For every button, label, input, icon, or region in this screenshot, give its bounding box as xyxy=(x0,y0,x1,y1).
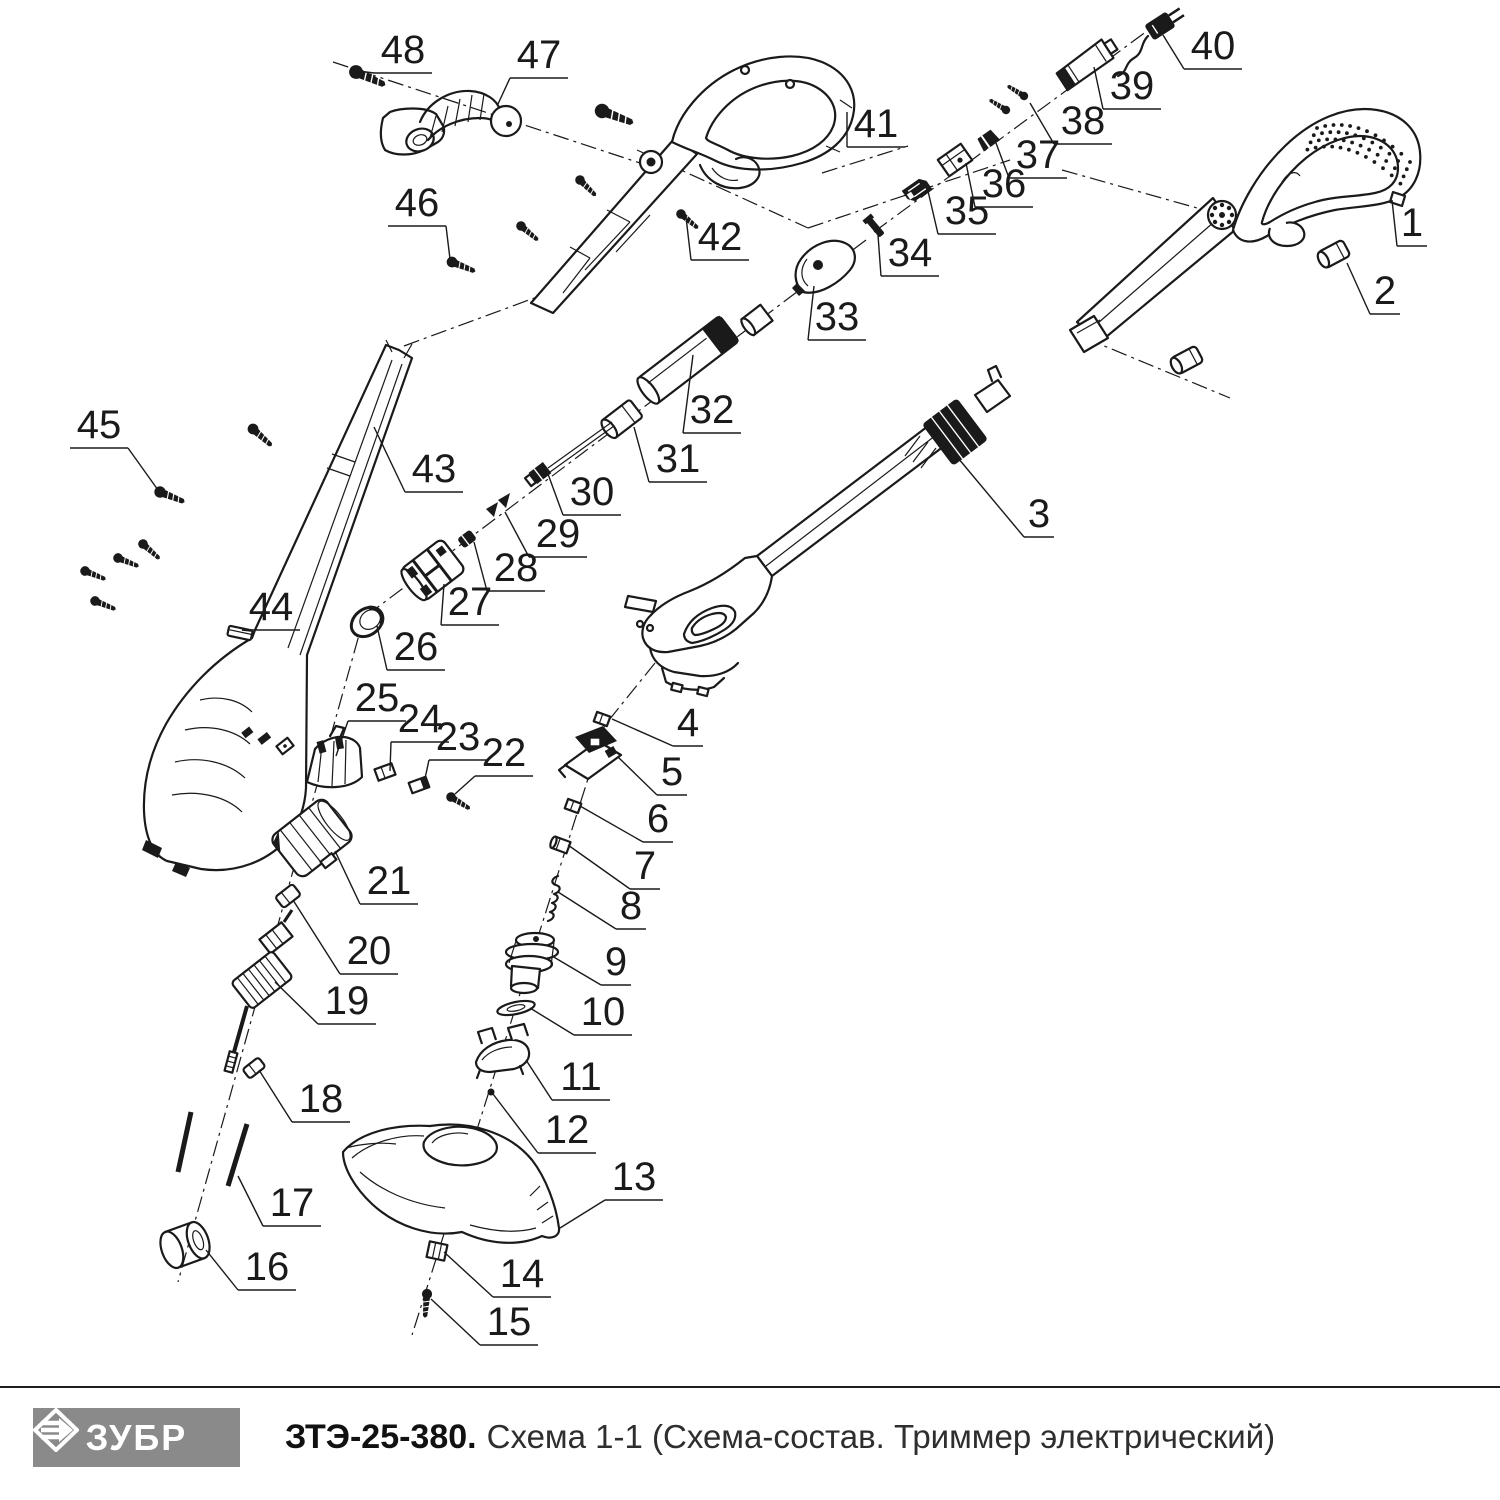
svg-text:8: 8 xyxy=(620,884,642,928)
part-15-screw xyxy=(420,1288,433,1318)
svg-text:46: 46 xyxy=(395,181,440,225)
part-label-14: 14 xyxy=(444,1252,551,1297)
part-label-37: 37 xyxy=(996,133,1067,178)
part-label-43: 43 xyxy=(374,427,463,492)
part-label-4: 4 xyxy=(612,701,703,746)
part-label-34: 34 xyxy=(878,231,939,276)
svg-text:20: 20 xyxy=(347,929,392,973)
footer: ЗУБР ЗТЭ-25-380. Схема 1-1 (Схема-состав… xyxy=(0,1404,1500,1474)
part-label-13: 13 xyxy=(560,1155,663,1228)
part-label-20: 20 xyxy=(293,900,398,974)
part-22-screw xyxy=(444,790,472,813)
exploded-diagram: 1234567891011121314151617181920212223242… xyxy=(0,0,1500,1386)
part-label-17: 17 xyxy=(238,1176,321,1226)
part-38-screws xyxy=(987,82,1030,116)
svg-text:29: 29 xyxy=(536,512,581,556)
part-label-27: 27 xyxy=(441,580,499,625)
svg-text:14: 14 xyxy=(500,1252,545,1296)
part-14-square-nut xyxy=(427,1241,448,1260)
part-24-brush-holder xyxy=(374,763,395,780)
page: 1234567891011121314151617181920212223242… xyxy=(0,0,1500,1500)
svg-text:40: 40 xyxy=(1191,24,1236,68)
svg-text:23: 23 xyxy=(436,715,481,759)
housing-screw xyxy=(514,219,541,244)
part-45-screw xyxy=(153,485,187,508)
part-35-connector xyxy=(902,176,932,204)
part-label-3: 3 xyxy=(953,452,1054,537)
brand-logo-text: ЗУБР xyxy=(86,1420,187,1456)
svg-text:13: 13 xyxy=(612,1155,657,1199)
svg-text:19: 19 xyxy=(325,979,370,1023)
part-label-19: 19 xyxy=(275,979,376,1024)
part-label-10: 10 xyxy=(530,990,632,1035)
model-code: ЗТЭ-25-380. xyxy=(285,1418,477,1457)
svg-text:11: 11 xyxy=(560,1055,602,1099)
svg-text:17: 17 xyxy=(270,1181,315,1225)
part-10-washer xyxy=(496,998,536,1018)
svg-text:9: 9 xyxy=(605,940,627,984)
svg-text:22: 22 xyxy=(482,731,527,775)
part-label-2: 2 xyxy=(1347,263,1400,314)
svg-text:34: 34 xyxy=(888,231,933,275)
part-label-5: 5 xyxy=(618,750,687,795)
part-label-8: 8 xyxy=(558,884,646,929)
part-label-41: 41 xyxy=(847,102,905,147)
part-4-nut xyxy=(594,712,611,726)
brand-logo: ЗУБР xyxy=(33,1408,240,1467)
svg-text:5: 5 xyxy=(661,750,683,794)
part-3-boom-assembly xyxy=(625,366,1010,696)
part-26-ring xyxy=(346,601,389,642)
part-label-16: 16 xyxy=(206,1245,296,1290)
part-11-spool-holder xyxy=(476,1024,529,1078)
svg-text:48: 48 xyxy=(381,28,426,72)
svg-text:10: 10 xyxy=(581,990,626,1034)
part-45-screw xyxy=(89,595,118,614)
part-17-trimmer-lines xyxy=(178,1112,247,1186)
part-6-nut xyxy=(565,799,582,813)
footer-divider xyxy=(0,1386,1500,1388)
part-label-31: 31 xyxy=(634,427,707,482)
part-label-15: 15 xyxy=(431,1299,538,1345)
part-label-45: 45 xyxy=(70,403,158,490)
brand-logo-icon xyxy=(33,1408,79,1452)
part-label-32: 32 xyxy=(683,355,741,433)
svg-text:43: 43 xyxy=(412,447,457,491)
part-label-40: 40 xyxy=(1163,24,1242,69)
part-label-6: 6 xyxy=(580,797,673,842)
svg-text:15: 15 xyxy=(487,1300,532,1344)
svg-text:18: 18 xyxy=(299,1077,344,1121)
part-33-trigger-lever xyxy=(792,241,855,296)
svg-text:2: 2 xyxy=(1374,269,1396,313)
svg-text:44: 44 xyxy=(249,585,294,629)
svg-text:12: 12 xyxy=(545,1108,590,1152)
part-23-brush xyxy=(409,777,430,793)
part-45-screw xyxy=(112,552,141,571)
part-label-9: 9 xyxy=(552,940,631,985)
part-label-47: 47 xyxy=(498,33,568,104)
housing-screw xyxy=(573,173,599,199)
svg-text:24: 24 xyxy=(398,697,443,741)
part-13-guard xyxy=(343,1125,559,1243)
part-label-48: 48 xyxy=(358,28,432,73)
part-1-main-handle xyxy=(1070,109,1420,352)
svg-text:28: 28 xyxy=(494,546,539,590)
caption-text: Схема 1-1 (Схема-состав. Триммер электри… xyxy=(487,1418,1276,1456)
svg-text:25: 25 xyxy=(355,676,400,720)
part-label-33: 33 xyxy=(808,286,866,340)
part-20-sleeve xyxy=(275,884,301,909)
svg-text:42: 42 xyxy=(698,215,743,259)
svg-text:38: 38 xyxy=(1061,99,1106,143)
part-label-30: 30 xyxy=(548,470,621,515)
part-label-18: 18 xyxy=(259,1070,350,1122)
svg-text:6: 6 xyxy=(647,797,669,841)
svg-text:39: 39 xyxy=(1110,64,1155,108)
svg-text:32: 32 xyxy=(690,388,735,432)
svg-text:7: 7 xyxy=(634,844,656,888)
part-19-rotor xyxy=(225,910,293,1073)
part-label-46: 46 xyxy=(388,181,450,259)
part-16-cap-nut xyxy=(156,1219,214,1271)
housing-screw xyxy=(593,102,636,130)
svg-text:30: 30 xyxy=(570,470,615,514)
caption: ЗТЭ-25-380. Схема 1-1 (Схема-состав. Три… xyxy=(285,1404,1275,1470)
part-label-26: 26 xyxy=(377,625,445,670)
svg-text:1: 1 xyxy=(1401,201,1423,245)
svg-text:45: 45 xyxy=(77,403,122,447)
part-5-switch-bracket xyxy=(559,726,621,779)
svg-text:16: 16 xyxy=(245,1245,290,1289)
handle-lock-knob xyxy=(1208,201,1236,229)
svg-text:37: 37 xyxy=(1016,133,1061,177)
svg-text:21: 21 xyxy=(367,859,412,903)
part-7-ferrule xyxy=(549,836,570,854)
part-label-1: 1 xyxy=(1392,200,1427,246)
part-45-screw xyxy=(136,537,163,562)
part-37-grommet xyxy=(976,129,1000,152)
svg-text:31: 31 xyxy=(656,437,701,481)
part-label-42: 42 xyxy=(686,215,749,260)
part-label-11: 11 xyxy=(526,1055,610,1100)
svg-text:26: 26 xyxy=(394,625,439,669)
part-label-21: 21 xyxy=(335,851,418,904)
part-label-7: 7 xyxy=(568,844,660,889)
svg-text:41: 41 xyxy=(854,102,899,146)
svg-text:4: 4 xyxy=(677,701,699,745)
part-45-screw xyxy=(79,565,108,584)
part-label-44: 44 xyxy=(242,585,300,631)
part-label-28: 28 xyxy=(474,542,545,591)
part-45-screw xyxy=(245,421,275,450)
svg-text:47: 47 xyxy=(517,33,562,77)
svg-text:33: 33 xyxy=(815,295,860,339)
svg-text:3: 3 xyxy=(1028,492,1050,536)
part-9-spool xyxy=(506,933,558,993)
